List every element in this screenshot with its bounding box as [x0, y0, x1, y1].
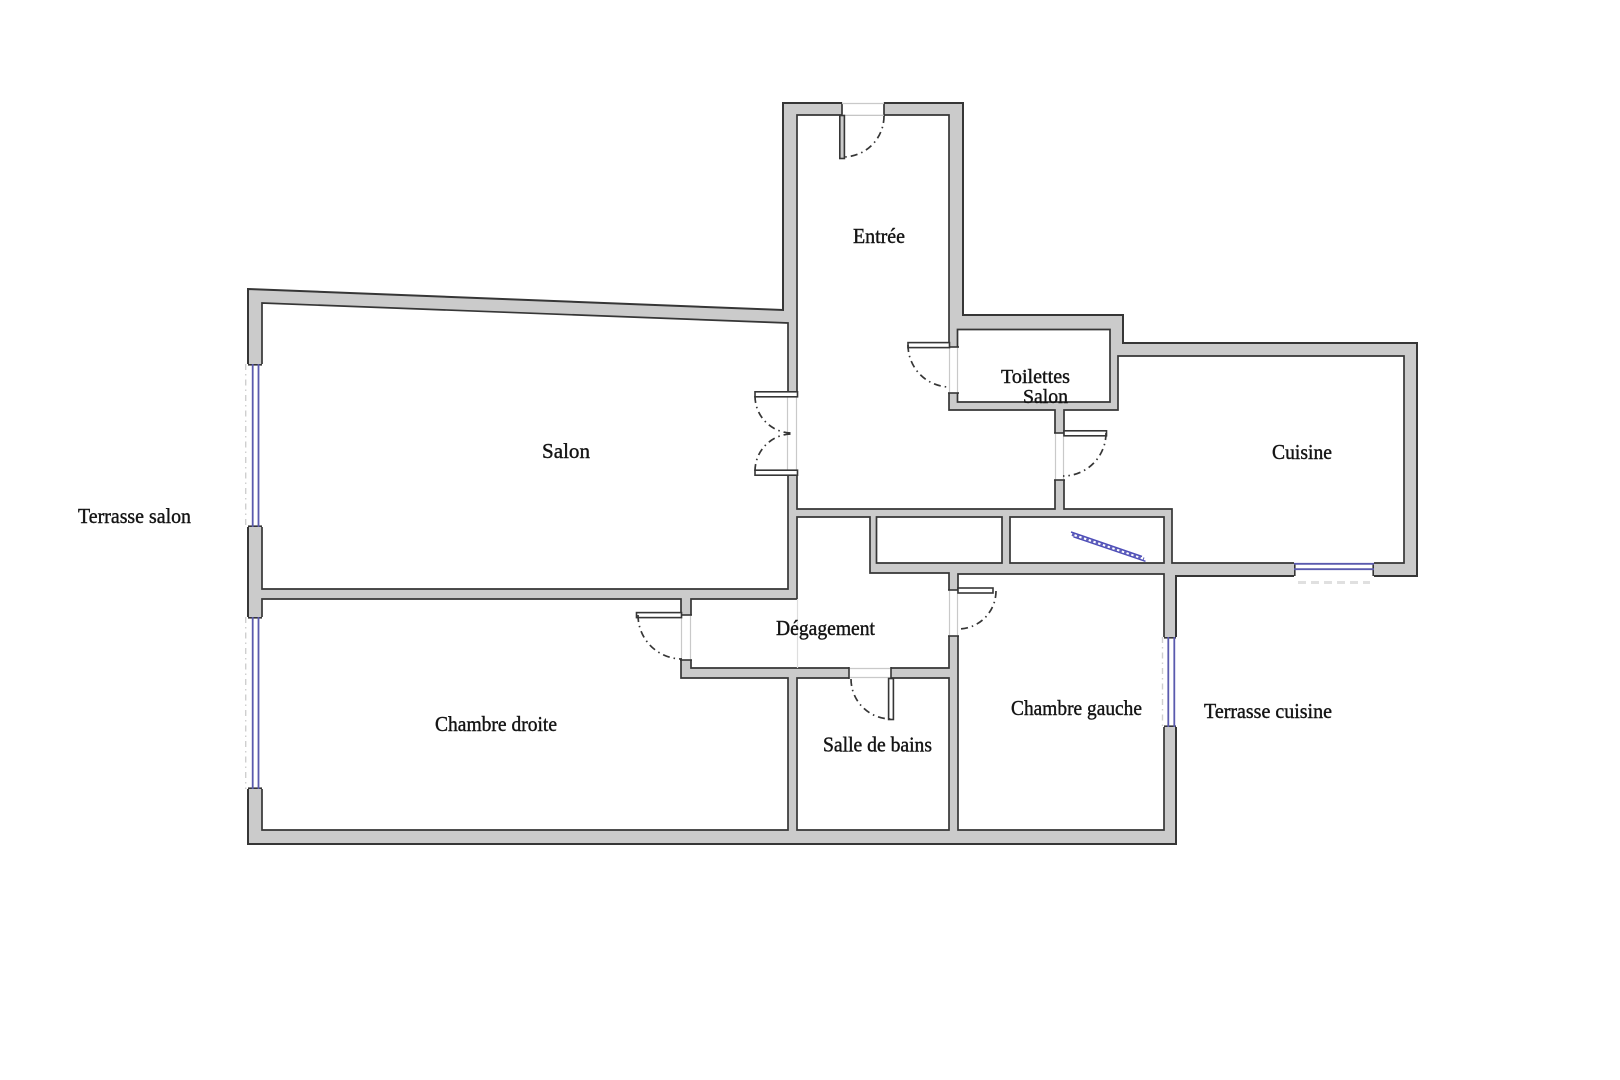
svg-text:Salon: Salon	[1023, 386, 1068, 408]
svg-text:Dégagement: Dégagement	[776, 616, 875, 640]
svg-text:Terrasse salon: Terrasse salon	[78, 504, 191, 528]
svg-text:Chambre droite: Chambre droite	[435, 712, 557, 736]
svg-text:Salon: Salon	[542, 439, 590, 463]
svg-text:Terrasse cuisine: Terrasse cuisine	[1204, 699, 1332, 723]
svg-text:Entrée: Entrée	[853, 224, 905, 248]
svg-text:Chambre gauche: Chambre gauche	[1011, 696, 1142, 720]
svg-text:Salle de bains: Salle de bains	[823, 733, 932, 757]
svg-text:Toilettes: Toilettes	[1001, 366, 1070, 388]
svg-text:Cuisine: Cuisine	[1272, 440, 1332, 464]
